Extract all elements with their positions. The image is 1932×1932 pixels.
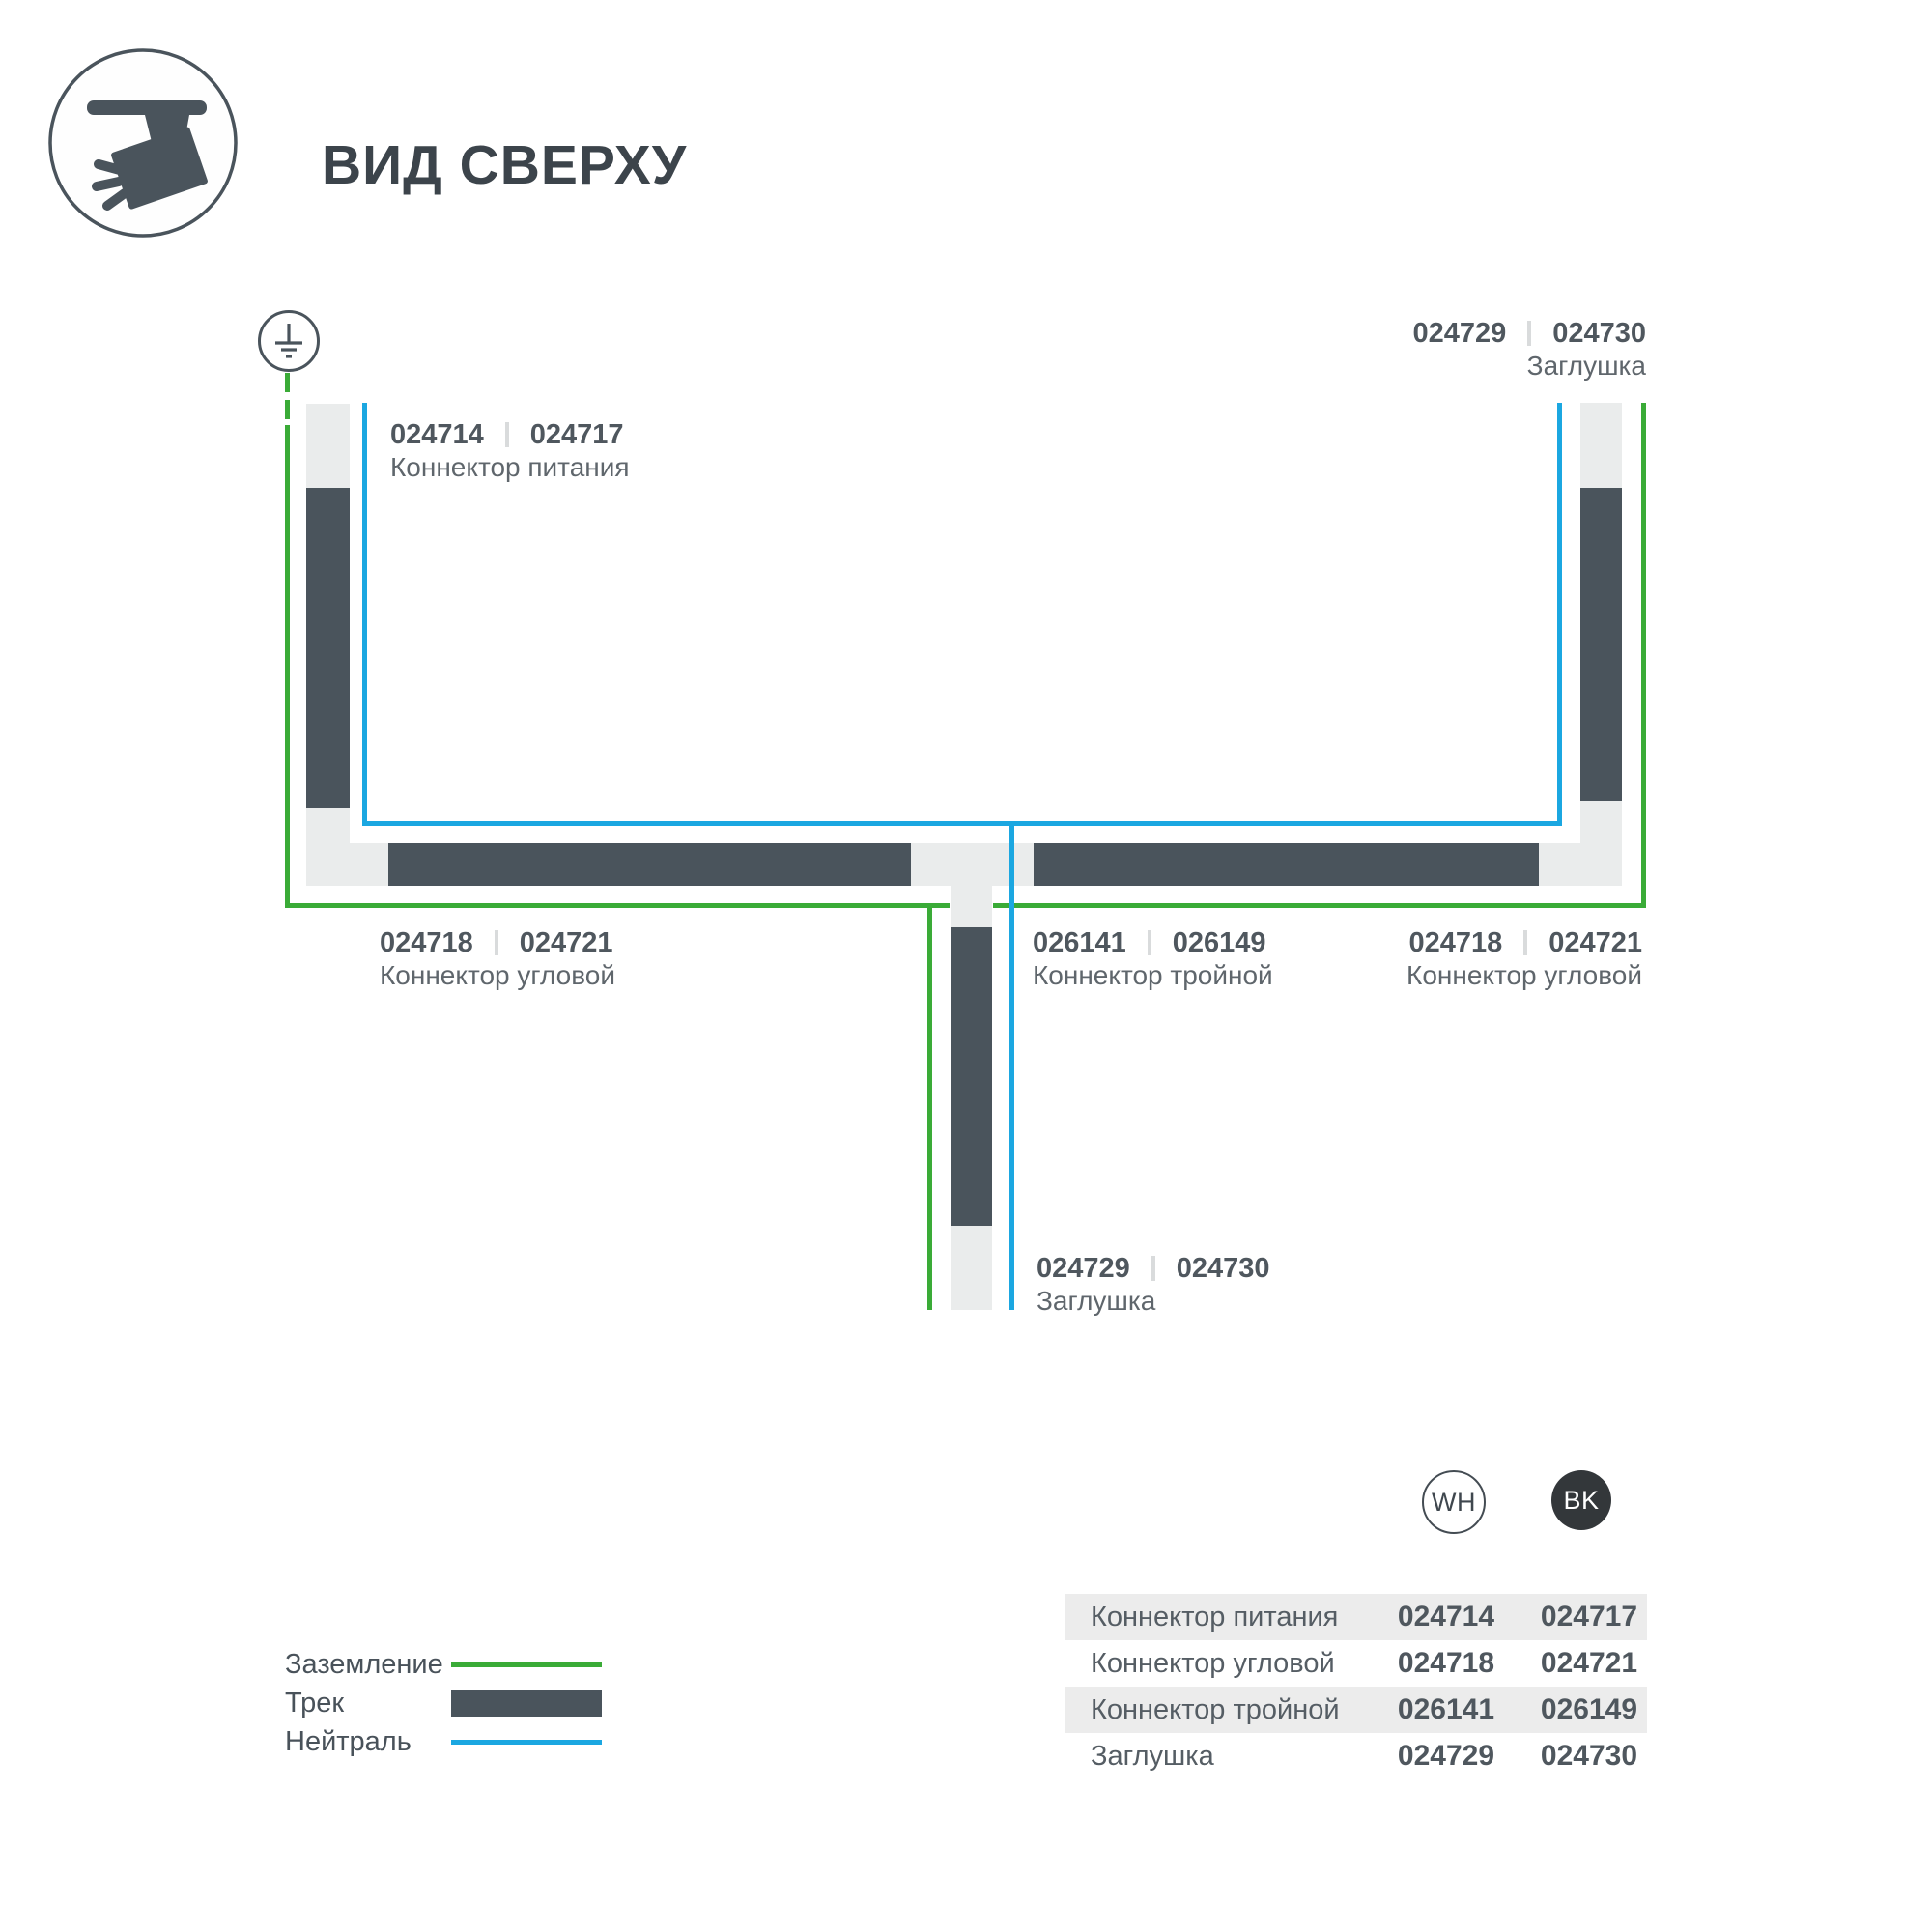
ground-line-bottom-left — [285, 903, 950, 908]
part-name-cell: Коннектор тройной — [1065, 1694, 1357, 1726]
legend-label: Трек — [285, 1688, 451, 1719]
part-name: Коннектор угловой — [380, 961, 615, 990]
label-power-connector: 024714024717 Коннектор питания — [390, 419, 630, 482]
part-number-wh: 024714 — [1357, 1601, 1500, 1634]
neutral-line-stem — [1009, 821, 1014, 1310]
parts-table: Коннектор питания 024714 024717 Коннекто… — [1065, 1594, 1647, 1779]
track-light-icon — [46, 46, 240, 240]
label-corner-connector-right: 024718024721 Коннектор угловой — [1406, 927, 1642, 990]
part-number-wh: 026141 — [1357, 1693, 1500, 1726]
part-name: Заглушка — [1037, 1287, 1270, 1316]
green-line-swatch — [451, 1662, 602, 1667]
part-name: Коннектор угловой — [1406, 961, 1642, 990]
page-title: ВИД СВЕРХУ — [322, 133, 687, 197]
divider — [1527, 321, 1531, 346]
part-number-bk: 024730 — [1500, 1740, 1647, 1773]
divider — [495, 930, 498, 955]
part-numbers: 024718024721 — [1406, 927, 1642, 958]
table-row: Коннектор питания 024714 024717 — [1065, 1594, 1647, 1640]
label-corner-connector-left: 024718024721 Коннектор угловой — [380, 927, 615, 990]
ground-line-left — [285, 425, 290, 908]
part-numbers: 024729024730 — [1412, 318, 1646, 349]
neutral-line-horizontal — [362, 821, 1562, 826]
part-number-wh: 024729 — [1357, 1740, 1500, 1773]
part-name-cell: Заглушка — [1065, 1741, 1357, 1773]
legend: Заземление Трек Нейтраль — [285, 1645, 602, 1761]
table-row: Заглушка 024729 024730 — [1065, 1733, 1647, 1779]
legend-label: Заземление — [285, 1649, 451, 1681]
part-name-cell: Коннектор питания — [1065, 1602, 1357, 1634]
part-number-wh: 024718 — [1357, 1647, 1500, 1680]
part-numbers: 024729024730 — [1037, 1253, 1270, 1284]
divider — [1523, 930, 1527, 955]
legend-item-neutral: Нейтраль — [285, 1722, 602, 1761]
earth-ground-icon — [258, 310, 320, 372]
variant-badge-white: WH — [1422, 1470, 1486, 1534]
label-end-cap-top: 024729024730 Заглушка — [1412, 318, 1646, 381]
part-name: Коннектор питания — [390, 453, 630, 482]
legend-item-track: Трек — [285, 1684, 602, 1722]
track-horizontal-right — [1034, 843, 1539, 886]
ground-line-bottom-right — [993, 903, 1646, 908]
page: ВИД СВЕРХУ 024714024717 Кон — [0, 0, 1932, 1932]
part-number-bk: 024717 — [1500, 1601, 1647, 1634]
label-end-cap-bottom: 024729024730 Заглушка — [1037, 1253, 1270, 1316]
ground-line-stem — [927, 903, 932, 1310]
track-right — [1580, 488, 1622, 801]
legend-label: Нейтраль — [285, 1726, 451, 1758]
divider — [505, 422, 509, 447]
track-horizontal-left — [388, 843, 911, 886]
corner-connector-left — [350, 843, 389, 886]
label-triple-connector: 026141026149 Коннектор тройной — [1033, 927, 1273, 990]
part-number-bk: 024721 — [1500, 1647, 1647, 1680]
legend-item-ground: Заземление — [285, 1645, 602, 1684]
part-name: Заглушка — [1412, 352, 1646, 381]
triple-connector-stem — [951, 886, 992, 928]
neutral-line-right — [1557, 403, 1562, 826]
divider — [1151, 1256, 1155, 1281]
ground-line-dash-2 — [285, 400, 290, 419]
divider — [1148, 930, 1151, 955]
corner-connector-right — [1539, 843, 1580, 886]
track-bar-swatch — [451, 1690, 602, 1717]
triple-connector — [911, 843, 1034, 886]
neutral-line-left — [362, 403, 367, 826]
part-numbers: 026141026149 — [1033, 927, 1273, 958]
blue-line-swatch — [451, 1740, 602, 1745]
part-numbers: 024714024717 — [390, 419, 630, 450]
table-row: Коннектор угловой 024718 024721 — [1065, 1640, 1647, 1687]
part-name: Коннектор тройной — [1033, 961, 1273, 990]
table-row: Коннектор тройной 026141 026149 — [1065, 1687, 1647, 1733]
ground-line-right — [1641, 403, 1646, 908]
end-cap-bottom — [951, 1226, 992, 1310]
track-left — [306, 488, 350, 808]
ground-line-dash-1 — [285, 373, 290, 392]
part-numbers: 024718024721 — [380, 927, 615, 958]
variant-badge-black: BK — [1551, 1470, 1611, 1530]
part-name-cell: Коннектор угловой — [1065, 1648, 1357, 1680]
track-stem — [951, 927, 992, 1226]
part-number-bk: 026149 — [1500, 1693, 1647, 1726]
